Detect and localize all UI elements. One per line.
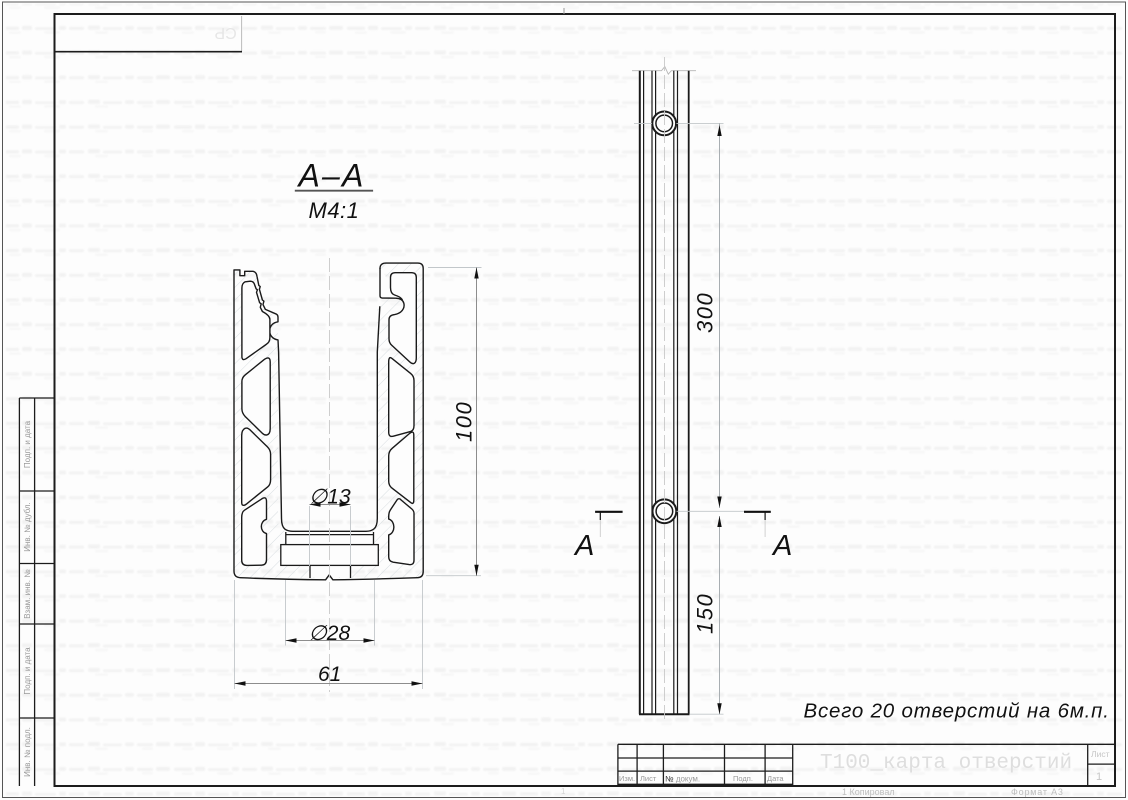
svg-text:1 Копировал: 1 Копировал bbox=[842, 787, 895, 797]
svg-text:Лист: Лист bbox=[1091, 749, 1110, 759]
svg-text:300: 300 bbox=[693, 292, 718, 333]
svg-text:A–A: A–A bbox=[297, 158, 366, 194]
svg-text:∅28: ∅28 bbox=[309, 622, 351, 645]
svg-text:Т100_карта отверстий: Т100_карта отверстий bbox=[820, 752, 1072, 775]
svg-text:A: A bbox=[573, 530, 594, 562]
svg-text:Инв. № дубл.: Инв. № дубл. bbox=[23, 502, 32, 552]
svg-text:Подп.: Подп. bbox=[733, 774, 753, 783]
svg-text:Подп. и дата: Подп. и дата bbox=[23, 647, 32, 695]
svg-text:1: 1 bbox=[561, 787, 566, 796]
svg-text:Взам. инв. №: Взам. инв. № bbox=[23, 569, 32, 619]
svg-text:Формат А3: Формат А3 bbox=[1011, 787, 1064, 797]
svg-text:Подп. и дата: Подп. и дата bbox=[23, 420, 32, 468]
svg-text:М4:1: М4:1 bbox=[309, 198, 360, 223]
svg-text:№ докум.: № докум. bbox=[665, 775, 700, 784]
svg-text:100: 100 bbox=[452, 401, 477, 442]
svg-text:1: 1 bbox=[1096, 771, 1102, 783]
svg-text:∅13: ∅13 bbox=[309, 486, 351, 509]
svg-text:Лист: Лист bbox=[640, 774, 657, 783]
svg-text:150: 150 bbox=[693, 593, 718, 634]
svg-text:Дата: Дата bbox=[767, 774, 784, 783]
svg-text:Всего 20 отверстий на 6м.п.: Всего 20 отверстий на 6м.п. bbox=[804, 700, 1110, 723]
svg-text:СР: СР bbox=[214, 24, 236, 41]
svg-text:Изм.: Изм. bbox=[619, 774, 635, 783]
svg-text:A: A bbox=[771, 530, 792, 562]
svg-text:Инв. № подл.: Инв. № подл. bbox=[23, 727, 32, 777]
svg-text:61: 61 bbox=[318, 663, 341, 686]
